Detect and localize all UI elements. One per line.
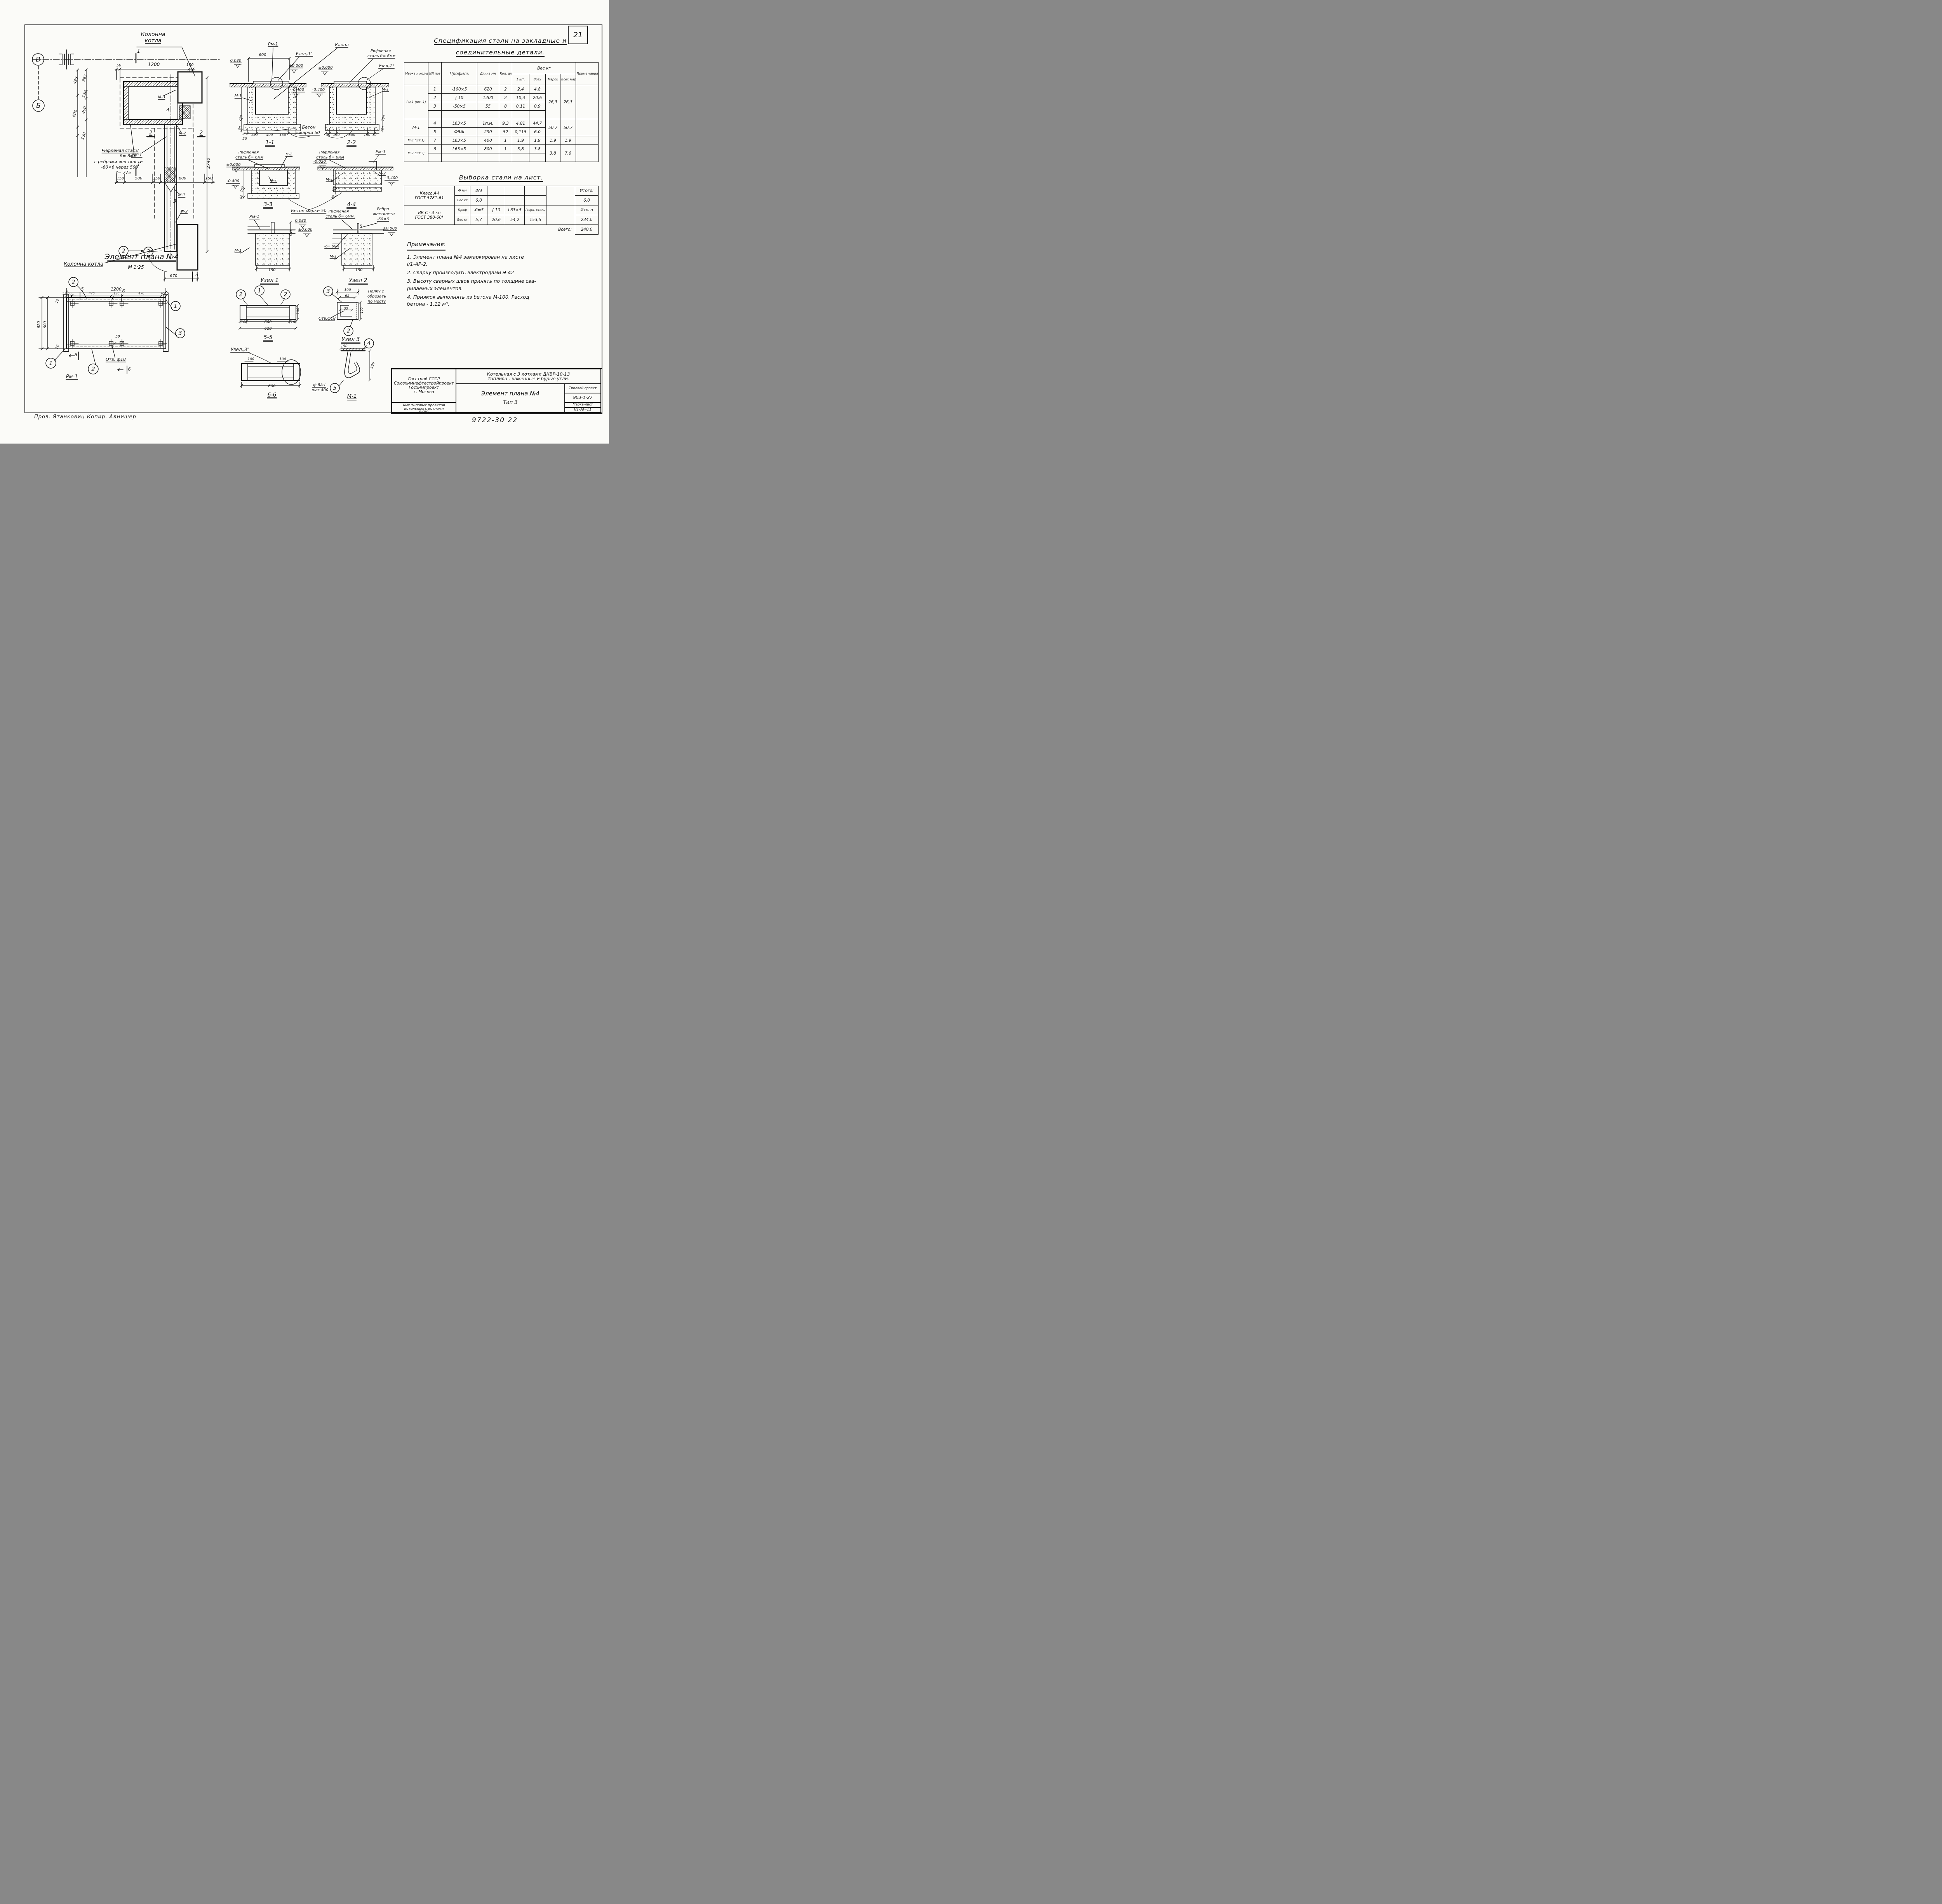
drawing-label: 1200 <box>111 287 122 292</box>
drawing-label: 6 <box>128 367 131 372</box>
note-2: 2. Сварку производить электродами Э-42 <box>407 269 593 276</box>
spec-table: Марка и кол-во шт. NN поз Профиль Длина … <box>404 62 599 162</box>
drawing-label: обрезать <box>367 294 386 299</box>
drawing-label: 400 <box>81 106 87 114</box>
spec-title-2: соединительные детали. <box>407 49 593 56</box>
drawing-label: 10 <box>55 298 60 304</box>
spec-title-1: Спецификация стали на закладные и <box>407 37 593 44</box>
drawing-label: 100 <box>279 357 286 361</box>
tp-label: Типовой проект <box>565 384 601 393</box>
drawing-label: 5 <box>360 225 362 228</box>
note-1: 1. Элемент плана №4 замаркирован на лист… <box>407 254 593 268</box>
drawing-label: Полку с <box>368 289 384 294</box>
drawing-label: 5 <box>62 292 64 295</box>
drawing-label: 60 <box>239 195 244 199</box>
drawing-label: 470 <box>138 292 144 295</box>
drawing-label: Элемент плана №4 <box>104 252 179 261</box>
ml-label: Марка-лист <box>565 402 601 407</box>
drawing-label: 670 <box>170 274 177 278</box>
drawing-label: 600 <box>264 320 271 324</box>
table-row: Всего: 240,0 <box>404 225 599 235</box>
drawing-label: -60×6 через 500 <box>101 165 138 170</box>
drawing-label: 2 <box>149 130 152 136</box>
section-4-4 <box>288 155 393 210</box>
marker-bubble-label: 3 <box>179 331 182 337</box>
drawing-label: 130 <box>113 292 119 295</box>
drawing-label: 10 <box>241 320 245 324</box>
marker-bubble-label: 1 <box>174 303 177 310</box>
drawing-label: 1-1 <box>266 139 275 146</box>
ml-value: I/1-АР-11 <box>565 407 601 412</box>
drawing-label: сталь б= 6мм <box>235 155 264 160</box>
drawing-label: 150 <box>341 345 347 348</box>
drawing-label: 5 <box>81 287 84 292</box>
drawing-label: Узел„1" <box>296 51 313 56</box>
drawing-label: 50 <box>117 63 122 68</box>
drawing-label: М-1 <box>382 87 389 92</box>
drawing-label: М-1 <box>235 249 242 253</box>
marker-bubble-label: 2 <box>72 279 75 285</box>
marker-bubble-label: 2 <box>347 328 350 334</box>
drawing-label: 150 <box>238 115 243 122</box>
marker-bubble-label: 3 <box>327 289 330 295</box>
drawing-label: 150 <box>333 133 339 137</box>
drawing-label: 3 <box>195 272 198 277</box>
col-marka: Марка и кол-во шт. <box>404 63 428 85</box>
drawing-label: -0,400 <box>227 179 239 183</box>
table-row: Класс А-IГОСТ 5781-61 Ф мм 8АI Итого: <box>404 186 599 196</box>
drawing-label: шаг 400 <box>312 388 329 392</box>
drawing-label: 50 <box>372 133 376 137</box>
drawing-label: 150 <box>251 133 258 137</box>
tp-value: 903-1-27 <box>565 393 601 402</box>
drawing-label: 60 <box>331 195 336 199</box>
drawing-label: 2740 <box>206 158 211 169</box>
rm1-detail <box>39 250 177 374</box>
drawing-label: Колонна <box>141 31 165 38</box>
drawing-label: ±0,000 <box>383 226 397 231</box>
drawing-label: 600 <box>268 384 275 388</box>
section-1-1 <box>230 48 337 137</box>
notes-title: Примечания: <box>407 241 445 251</box>
drawing-label: 150 <box>355 268 362 272</box>
drawing-label: Отв.ф18 <box>318 317 336 321</box>
drawing-label: 50 <box>242 137 247 141</box>
marker-bubble-label: 4 <box>367 341 371 347</box>
section-2-2 <box>322 59 388 138</box>
drawing-label: сталь б= 6мм. <box>325 214 355 219</box>
sheet-title: Элемент плана №4 Тип 3 <box>456 384 565 412</box>
drawing-label: по месту <box>368 299 386 304</box>
table-row: Рм-1 (шт.-1) 1-100×5 6202 2,44,8 26,3 26… <box>404 85 599 94</box>
drawing-label: 800 <box>348 133 355 137</box>
table-row: М-2 (шт.2) 6L63×5 8001 3,83,8 3,8 7,6 <box>404 145 599 153</box>
drawing-label: М-1 <box>330 254 337 259</box>
drawing-label: 65 <box>68 292 71 295</box>
drawing-label: 100 <box>344 288 351 292</box>
elevation-mark-icon <box>291 70 298 73</box>
drawing-label: М-1 <box>326 178 333 182</box>
drawing-canvas: Колоннакотла5012001001143538513060040015… <box>0 0 404 444</box>
signature-line: Пров. Ятанковиц Копир. Алнишер <box>34 414 136 420</box>
uzel-2 <box>332 220 384 271</box>
drawing-label: 600 <box>43 321 47 328</box>
steel-class: ВК Ст 3 кпГОСТ 380-60* <box>404 205 455 225</box>
drawing-label: 100 <box>296 308 300 314</box>
drawing-label: 100 <box>247 357 254 361</box>
drawing-label: Рм-1 <box>66 374 78 380</box>
drawing-label: м-2 <box>285 152 292 157</box>
drawing-label: Рифленая <box>371 49 391 53</box>
drawing-label: 150 <box>80 132 87 140</box>
m1-detail <box>339 346 371 386</box>
drawing-label: 1200 <box>148 62 160 67</box>
drawing-label: 500 <box>135 176 142 181</box>
drawing-label: ℓ= 775 <box>116 170 131 175</box>
drawing-label: 150 <box>268 268 275 272</box>
drawing-label: М-1 <box>270 178 277 183</box>
note-3: 3. Высоту сварных швов принять по толщин… <box>407 278 593 292</box>
drawing-label: 4 <box>166 108 169 113</box>
drawing-label: 2 <box>200 130 203 136</box>
drawing-label: 400 <box>266 133 273 137</box>
table-row: М-1 4L63×5 1п.м.9,3 4,8144,7 50,7 50,7 <box>404 119 599 128</box>
marker-bubble-label: 5 <box>333 385 337 392</box>
drawing-label: 0,080 <box>230 59 242 63</box>
drawing-label: Рифленая сталь' <box>102 148 139 153</box>
drawing-label: 150 <box>205 176 212 181</box>
drawing-label: Ребро <box>377 207 389 211</box>
drawing-label: -60×6 <box>377 217 389 221</box>
drawing-label: 3-3 <box>264 202 273 208</box>
drawing-label: М-3 <box>158 95 165 99</box>
drawing-label: 5 <box>75 352 78 357</box>
drawing-label: М-2 <box>379 171 386 176</box>
drawing-label: 100 <box>186 63 193 67</box>
drawing-label: Рифленая <box>329 209 349 214</box>
marker-bubble-label: 1 <box>49 360 53 367</box>
drawing-label: ±0.000 <box>289 64 303 68</box>
drawing-label: М-1 <box>347 393 357 399</box>
marker-bubble-label: 2 <box>239 292 243 298</box>
drawing-label: 0,080 <box>295 219 306 223</box>
organization: Госстрой СССР Союзхимнефтестройпроект Го… <box>392 369 456 402</box>
drawing-label: М-1 <box>178 193 186 197</box>
document-number: 9722-30 22 <box>472 416 518 424</box>
drawing-label: 150 <box>381 115 386 122</box>
drawing-label: Узел 1 <box>261 277 279 284</box>
drawing-label: 600 <box>72 109 78 118</box>
elevation-mark-icon <box>234 64 241 68</box>
drawing-label: Рифленая <box>238 150 259 155</box>
title-block: Госстрой СССР Союзхимнефтестройпроект Го… <box>391 368 602 414</box>
drawing-label: 150 <box>370 362 376 369</box>
drawing-label: ±0,000 <box>318 66 332 70</box>
drawing-label: 4-4 <box>347 202 356 208</box>
drawing-label: -0,400 <box>385 176 398 180</box>
drawing-label: 150 <box>364 133 370 137</box>
drawing-label: б= 6мм <box>120 153 136 158</box>
drawing-label: 5 <box>167 292 169 295</box>
drawing-label: Рм-1 <box>376 149 386 154</box>
vyborka-title: Выборка стали на лист. <box>427 174 575 181</box>
marker-bubble-label: 1 <box>258 288 261 294</box>
marker-bubble-label: 2 <box>91 365 95 372</box>
drawing-label: 435 <box>73 76 79 85</box>
drawing-label: марки 50 <box>299 130 320 135</box>
drawing-label: 3 <box>173 198 176 204</box>
elevation-mark-icon <box>303 234 310 237</box>
drawing-label: 130 <box>279 133 286 137</box>
drawing-label: -0,020 <box>313 160 326 164</box>
drawing-label: М-1 <box>235 94 242 98</box>
drawing-label: 150 <box>153 176 160 181</box>
table-row: М-3 (шт.1) 7L63×5 4001 1,91,9 1,9 1,9 <box>404 136 599 145</box>
drawing-label: 800 <box>179 176 186 181</box>
marker-bubble-label: В <box>36 56 40 64</box>
drawing-label: ±0.000 <box>226 163 240 167</box>
drawing-label: жесткости <box>372 212 395 216</box>
drawing-label: Колонна котла <box>64 261 103 267</box>
project-name: Котельная с 3 котлами ДКВР-10-13 Топливо… <box>456 369 601 384</box>
drawing-label: 10 <box>291 320 295 324</box>
elevation-mark-icon <box>316 94 323 97</box>
steel-class: Класс А-IГОСТ 5781-61 <box>404 186 455 205</box>
marker-bubble-label: 2 <box>122 248 125 254</box>
drawing-label: 50 <box>326 133 330 137</box>
drawing-label: 50 <box>115 335 120 339</box>
drawing-label: -б= 6мм <box>324 245 339 249</box>
drawing-label: Узел„3" <box>231 347 249 352</box>
drawing-label: М-2 <box>181 209 188 214</box>
drawing-label: 600 <box>259 53 266 57</box>
series: Серия унифицирован- ных типовых проектов… <box>392 402 456 412</box>
drawing-label: 65 <box>345 294 350 298</box>
drawing-label: 620 <box>264 327 271 331</box>
drawing-label: Канал <box>335 42 349 47</box>
elevation-mark-icon <box>321 72 328 75</box>
drawing-label: 385 <box>82 74 88 82</box>
drawing-label: 2-2 <box>347 139 356 146</box>
marker-bubble-label: 2 <box>284 292 287 298</box>
drawing-label: котла <box>145 38 162 44</box>
drawing-label: 6-6 <box>268 392 277 398</box>
drawing-label: М-2 <box>179 131 186 136</box>
drawing-label: Узел„2" <box>379 64 394 68</box>
drawing-label: 55 <box>344 307 348 310</box>
drawing-label: 100 <box>360 307 364 313</box>
drawing-label: 60 <box>381 126 385 131</box>
drawing-label: М 1:25 <box>128 265 144 270</box>
drawing-label: -0,400 <box>312 88 325 92</box>
drawing-label: сталь б= 6мм <box>367 54 396 58</box>
drawing-label: Узел 3 <box>342 336 360 343</box>
uzel-1 <box>241 220 295 271</box>
elevation-mark-icon <box>388 233 395 236</box>
drawing-label: Рм-1 <box>268 42 278 47</box>
drawing-label: 100 <box>289 230 293 237</box>
note-4: 4. Приямок выполнять из бетона М-100. Ра… <box>407 294 593 308</box>
notes-block: Примечания: 1. Элемент плана №4 замаркир… <box>407 241 593 309</box>
drawing-label: 470 <box>89 292 94 295</box>
marker-bubble-label: Б <box>36 102 41 110</box>
drawing-label: Бетон марки 50 <box>291 208 326 213</box>
drawing-label: Отв. ф18 <box>106 357 126 362</box>
drawing-label: -0.400 <box>292 88 304 92</box>
drawing-label: Рифленая <box>319 150 339 155</box>
drawing-label: Узел 2 <box>349 277 367 284</box>
drawing-label: 620 <box>37 321 41 328</box>
elevation-mark-icon <box>232 185 239 188</box>
drawing-label: сталь б= 6мм <box>316 155 345 160</box>
drawing-label: 150 <box>117 176 124 181</box>
drawing-label: Бетон <box>302 125 316 130</box>
marker-bubble-label: 3 <box>147 249 150 255</box>
vyborka-table: Класс А-IГОСТ 5781-61 Ф мм 8АI Итого: Ве… <box>404 186 599 235</box>
drawing-sheet: 21 <box>0 0 609 444</box>
drawing-label: с ребрами жесткости <box>94 159 143 164</box>
drawing-label: 65 <box>161 292 165 295</box>
drawing-label: ±0,000 <box>298 228 312 232</box>
drawing-label: 1 <box>137 49 140 54</box>
drawing-label: 5-5 <box>264 334 273 341</box>
table-row: ВК Ст 3 кпГОСТ 380-60* Проф -б=5 [ 10 L6… <box>404 205 599 215</box>
drawing-label: ф 8А-I <box>313 383 325 387</box>
drawing-label: 6 <box>122 289 125 294</box>
elevation-mark-icon <box>388 182 395 185</box>
drawing-label: Рм-1 <box>249 214 259 219</box>
